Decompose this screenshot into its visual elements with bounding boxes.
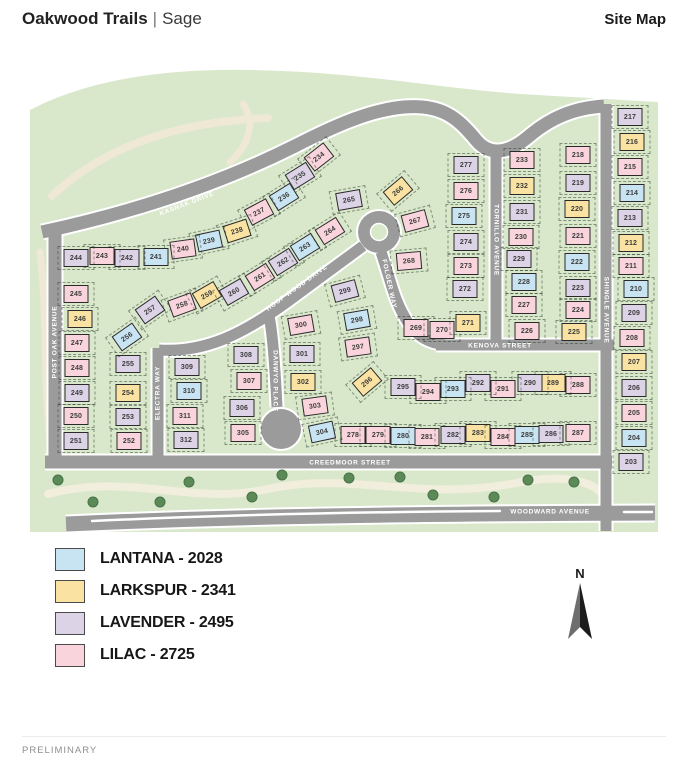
lot-301: 301 <box>290 345 315 363</box>
street-label-electra-way: ELECTRA WAY <box>155 366 162 420</box>
lot-214: 214 <box>620 184 645 202</box>
street-label-kenova-street: KENOVA STREET <box>468 343 532 350</box>
lot-210: 210 <box>624 280 649 298</box>
north-arrow-glyph <box>558 581 602 647</box>
lot-221: 221 <box>566 227 591 245</box>
lot-246: 246 <box>68 310 93 328</box>
lot-252: 252 <box>117 432 142 450</box>
lot-229: 229 <box>507 250 532 268</box>
lot-233: 233 <box>510 151 535 169</box>
lot-218: 218 <box>566 146 591 164</box>
lot-283: 283 <box>466 424 491 442</box>
lot-279: 279 <box>366 426 391 444</box>
lot-292: 292 <box>466 374 491 392</box>
lot-293: 293 <box>441 380 466 398</box>
lot-213: 213 <box>618 209 643 227</box>
lot-250: 250 <box>64 407 89 425</box>
lot-286: 286 <box>539 425 564 443</box>
lot-255: 255 <box>116 355 141 373</box>
lot-208: 208 <box>620 329 645 347</box>
north-arrow: N <box>558 566 602 650</box>
lot-245: 245 <box>64 285 89 303</box>
legend-item-lavender: LAVENDER - 2495 <box>55 607 236 639</box>
lot-268: 268 <box>396 251 422 271</box>
lot-217: 217 <box>618 108 643 126</box>
lot-212: 212 <box>619 234 644 252</box>
legend-swatch-lantana <box>55 548 85 571</box>
lot-243: 243 <box>90 247 115 265</box>
legend-label-lilac: LILAC - 2725 <box>100 646 195 664</box>
lot-228: 228 <box>512 273 537 291</box>
lot-241: 241 <box>144 248 169 266</box>
lot-311: 311 <box>173 407 198 425</box>
street-label-woodward-avenue: WOODWARD AVENUE <box>510 509 589 516</box>
lot-280: 280 <box>391 427 416 445</box>
lot-251: 251 <box>64 432 89 450</box>
lot-215: 215 <box>618 158 643 176</box>
lot-303: 303 <box>301 395 328 416</box>
lot-272: 272 <box>453 280 478 298</box>
lot-211: 211 <box>619 257 644 275</box>
legend-item-larkspur: LARKSPUR - 2341 <box>55 575 236 607</box>
lot-204: 204 <box>622 429 647 447</box>
lot-209: 209 <box>622 304 647 322</box>
lot-222: 222 <box>565 253 590 271</box>
lot-285: 285 <box>515 426 540 444</box>
street-label-post-oak-avenue: POST OAK AVENUE <box>52 306 59 379</box>
lot-223: 223 <box>566 279 591 297</box>
lot-291: 291 <box>491 380 516 398</box>
lot-253: 253 <box>116 408 141 426</box>
lot-306: 306 <box>230 399 255 417</box>
street-label-danwyo-place: DANWYO PLACE <box>272 350 279 412</box>
footer-divider <box>22 736 666 737</box>
lot-269: 269 <box>404 319 429 337</box>
lot-310: 310 <box>177 382 202 400</box>
lot-288: 288 <box>566 376 591 394</box>
legend-item-lilac: LILAC - 2725 <box>55 639 236 671</box>
lot-206: 206 <box>622 379 647 397</box>
lot-225: 225 <box>562 323 587 341</box>
preliminary-note: PRELIMINARY <box>22 745 97 756</box>
legend-label-lantana: LANTANA - 2028 <box>100 550 223 568</box>
lot-226: 226 <box>515 322 540 340</box>
lot-219: 219 <box>566 174 591 192</box>
lot-289: 289 <box>541 374 566 392</box>
lot-312: 312 <box>174 431 199 449</box>
lot-227: 227 <box>512 296 537 314</box>
lot-309: 309 <box>175 358 200 376</box>
lot-297: 297 <box>344 336 371 357</box>
lot-282: 282 <box>441 426 466 444</box>
lot-294: 294 <box>416 383 441 401</box>
street-label-tornillo-avenue: TORNILLO AVENUE <box>493 204 500 276</box>
lot-307: 307 <box>237 372 262 390</box>
lot-278: 278 <box>341 426 366 444</box>
lot-205: 205 <box>622 404 647 422</box>
lot-270: 270 <box>430 321 455 339</box>
lot-247: 247 <box>65 334 90 352</box>
lot-248: 248 <box>65 359 90 377</box>
legend-label-larkspur: LARKSPUR - 2341 <box>100 582 236 600</box>
lot-249: 249 <box>65 384 90 402</box>
lot-240: 240 <box>169 238 196 259</box>
lot-271: 271 <box>456 314 481 332</box>
legend-label-lavender: LAVENDER - 2495 <box>100 614 234 632</box>
lot-216: 216 <box>620 133 645 151</box>
lot-220: 220 <box>565 200 590 218</box>
lot-275: 275 <box>452 207 477 225</box>
street-label-shingle-avenue: SHINGLE AVENUE <box>603 277 610 344</box>
lot-305: 305 <box>231 424 256 442</box>
lot-254: 254 <box>116 384 141 402</box>
lot-231: 231 <box>510 203 535 221</box>
lot-230: 230 <box>509 228 534 246</box>
lot-295: 295 <box>391 378 416 396</box>
north-label: N <box>558 566 602 581</box>
lot-224: 224 <box>566 301 591 319</box>
legend-item-lantana: LANTANA - 2028 <box>55 543 236 575</box>
lot-244: 244 <box>64 249 89 267</box>
danwyo-cul-de-sac <box>261 409 301 449</box>
lot-284: 284 <box>491 428 516 446</box>
legend-swatch-lilac <box>55 644 85 667</box>
lot-242: 242 <box>115 249 140 267</box>
street-label-creedmoor-street: CREEDMOOR STREET <box>309 460 391 467</box>
lot-203: 203 <box>619 453 644 471</box>
lot-274: 274 <box>454 233 479 251</box>
lot-281: 281 <box>415 428 440 446</box>
lot-232: 232 <box>510 177 535 195</box>
plan-legend: LANTANA - 2028LARKSPUR - 2341LAVENDER - … <box>55 543 236 671</box>
lot-290: 290 <box>518 374 543 392</box>
lot-308: 308 <box>234 346 259 364</box>
lot-276: 276 <box>454 182 479 200</box>
lot-302: 302 <box>291 373 316 391</box>
hoop-wood-island <box>371 224 388 241</box>
legend-swatch-larkspur <box>55 580 85 603</box>
lot-207: 207 <box>622 353 647 371</box>
lot-287: 287 <box>566 424 591 442</box>
lot-273: 273 <box>454 257 479 275</box>
lot-277: 277 <box>454 156 479 174</box>
legend-swatch-lavender <box>55 612 85 635</box>
